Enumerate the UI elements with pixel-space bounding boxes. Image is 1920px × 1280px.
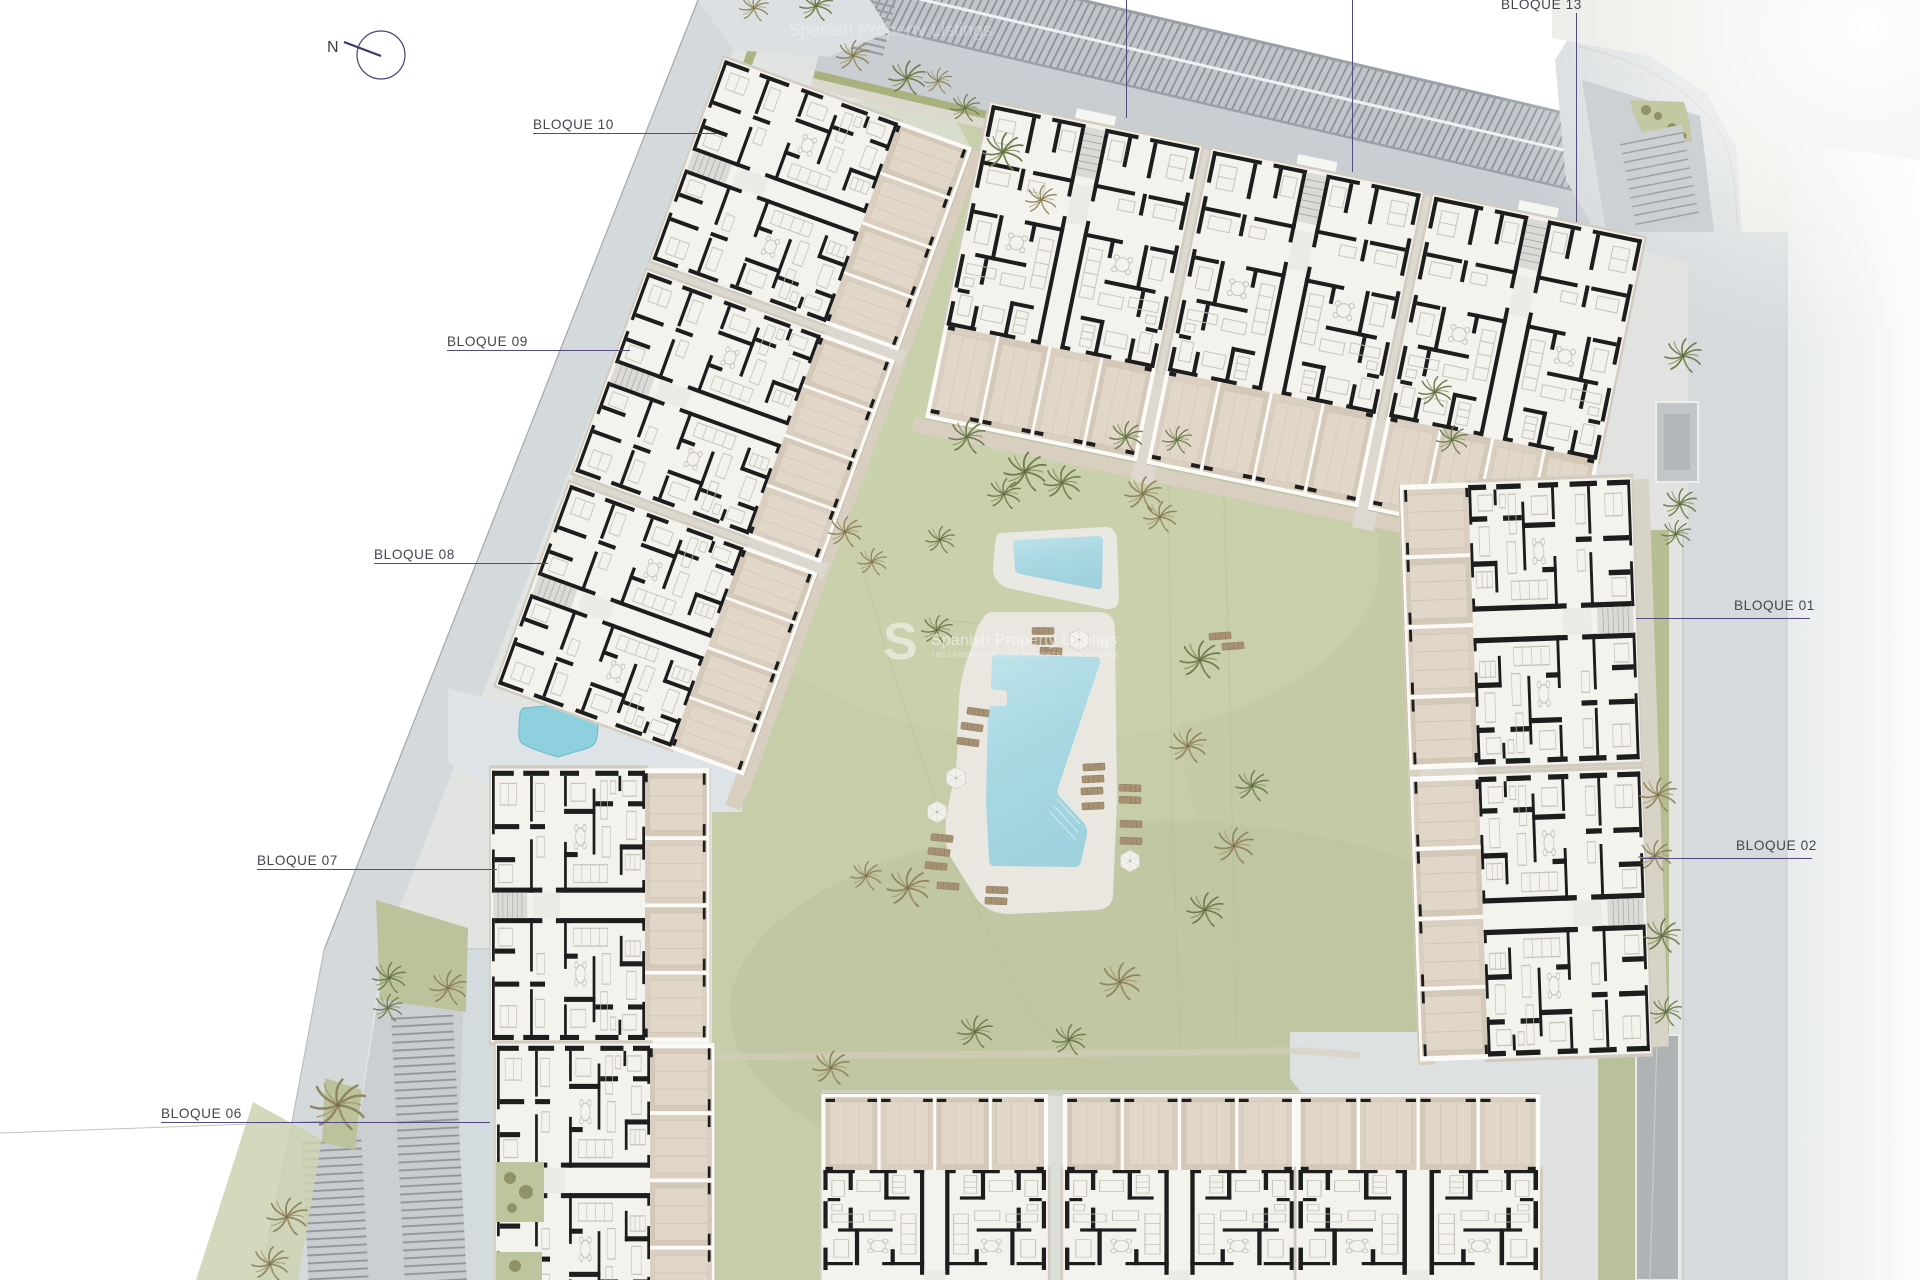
svg-text:BLOQUE 13: BLOQUE 13	[1501, 0, 1582, 12]
svg-text:BLOQUE 02: BLOQUE 02	[1736, 838, 1817, 853]
svg-text:N: N	[327, 39, 339, 56]
svg-text:BLOQUE 06: BLOQUE 06	[161, 1106, 242, 1121]
svg-text:S: S	[883, 613, 918, 671]
svg-text:BLOQUE 09: BLOQUE 09	[447, 334, 528, 349]
svg-text:Spanish Property Listings: Spanish Property Listings	[931, 632, 1118, 649]
svg-text:BLOQUE 10: BLOQUE 10	[533, 117, 614, 132]
svg-text:BLOQUE 01: BLOQUE 01	[1734, 598, 1815, 613]
svg-text:Spanish Property Listings: Spanish Property Listings	[788, 20, 992, 40]
svg-text:BLOQUE 08: BLOQUE 08	[374, 547, 455, 562]
svg-text:BLOQUE 07: BLOQUE 07	[257, 853, 338, 868]
svg-text:THE LARGEST SPANISH PROPERTY M: THE LARGEST SPANISH PROPERTY MARKETPLACE	[931, 652, 1119, 659]
